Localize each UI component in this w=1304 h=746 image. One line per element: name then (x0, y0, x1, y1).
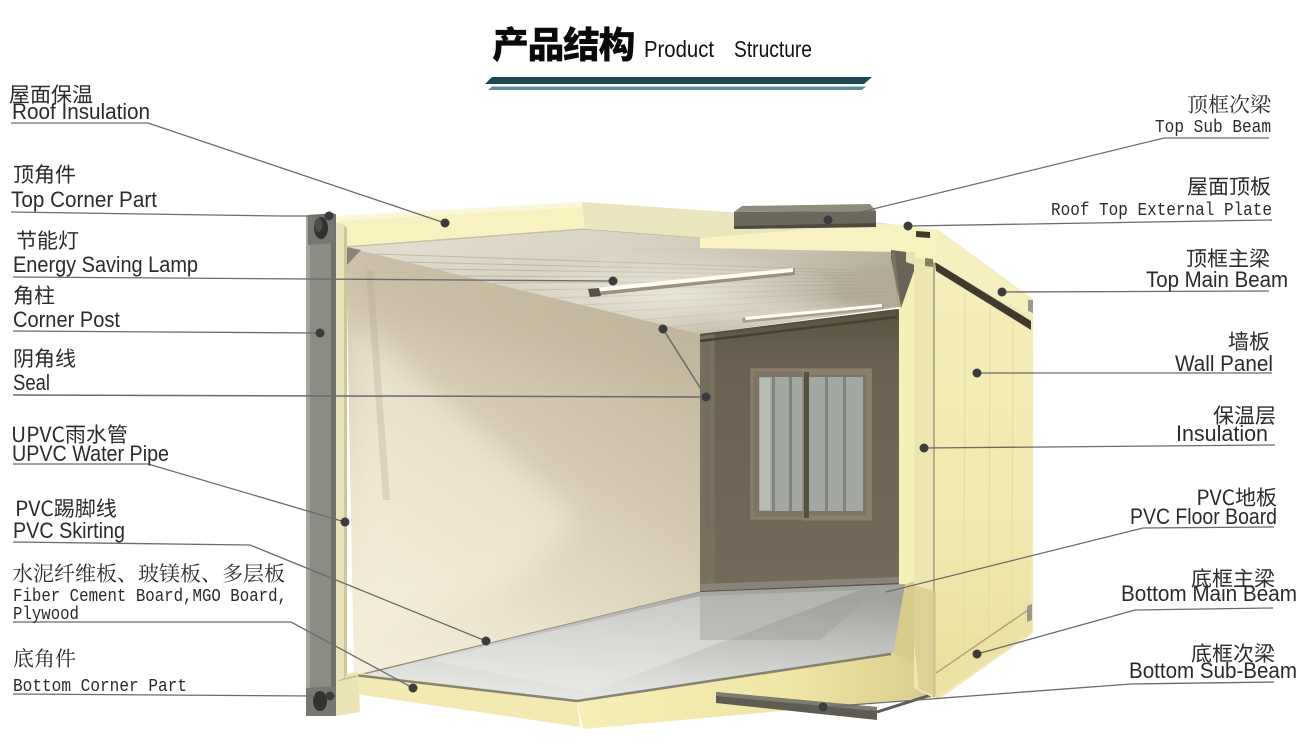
svg-text:Bottom Sub-Beam: Bottom Sub-Beam (1129, 658, 1297, 683)
svg-text:Top Main Beam: Top Main Beam (1146, 267, 1288, 292)
svg-text:Wall Panel: Wall Panel (1175, 351, 1273, 376)
svg-text:PVC Floor Board: PVC Floor Board (1130, 504, 1277, 529)
svg-text:Roof Insulation: Roof Insulation (12, 99, 150, 124)
svg-text:Corner Post: Corner Post (13, 307, 120, 332)
svg-text:Fiber Cement Board,MGO Board,: Fiber Cement Board,MGO Board, (13, 587, 287, 607)
svg-text:Insulation: Insulation (1176, 421, 1268, 446)
svg-text:Roof Top External Plate: Roof Top External Plate (1051, 201, 1272, 221)
svg-text:Top Sub Beam: Top Sub Beam (1155, 118, 1271, 138)
svg-text:Energy Saving Lamp: Energy Saving Lamp (13, 252, 198, 277)
svg-text:Structure: Structure (734, 36, 812, 62)
svg-text:PVC Skirting: PVC Skirting (13, 518, 125, 543)
svg-text:Bottom Corner Part: Bottom Corner Part (13, 677, 187, 697)
svg-text:Plywood: Plywood (13, 605, 79, 625)
svg-text:Top Corner Part: Top Corner Part (11, 187, 157, 212)
svg-text:Seal: Seal (13, 370, 50, 395)
svg-text:Product: Product (644, 36, 715, 62)
svg-text:UPVC Water Pipe: UPVC Water Pipe (12, 441, 169, 466)
svg-text:Bottom Main Beam: Bottom Main Beam (1121, 581, 1297, 606)
